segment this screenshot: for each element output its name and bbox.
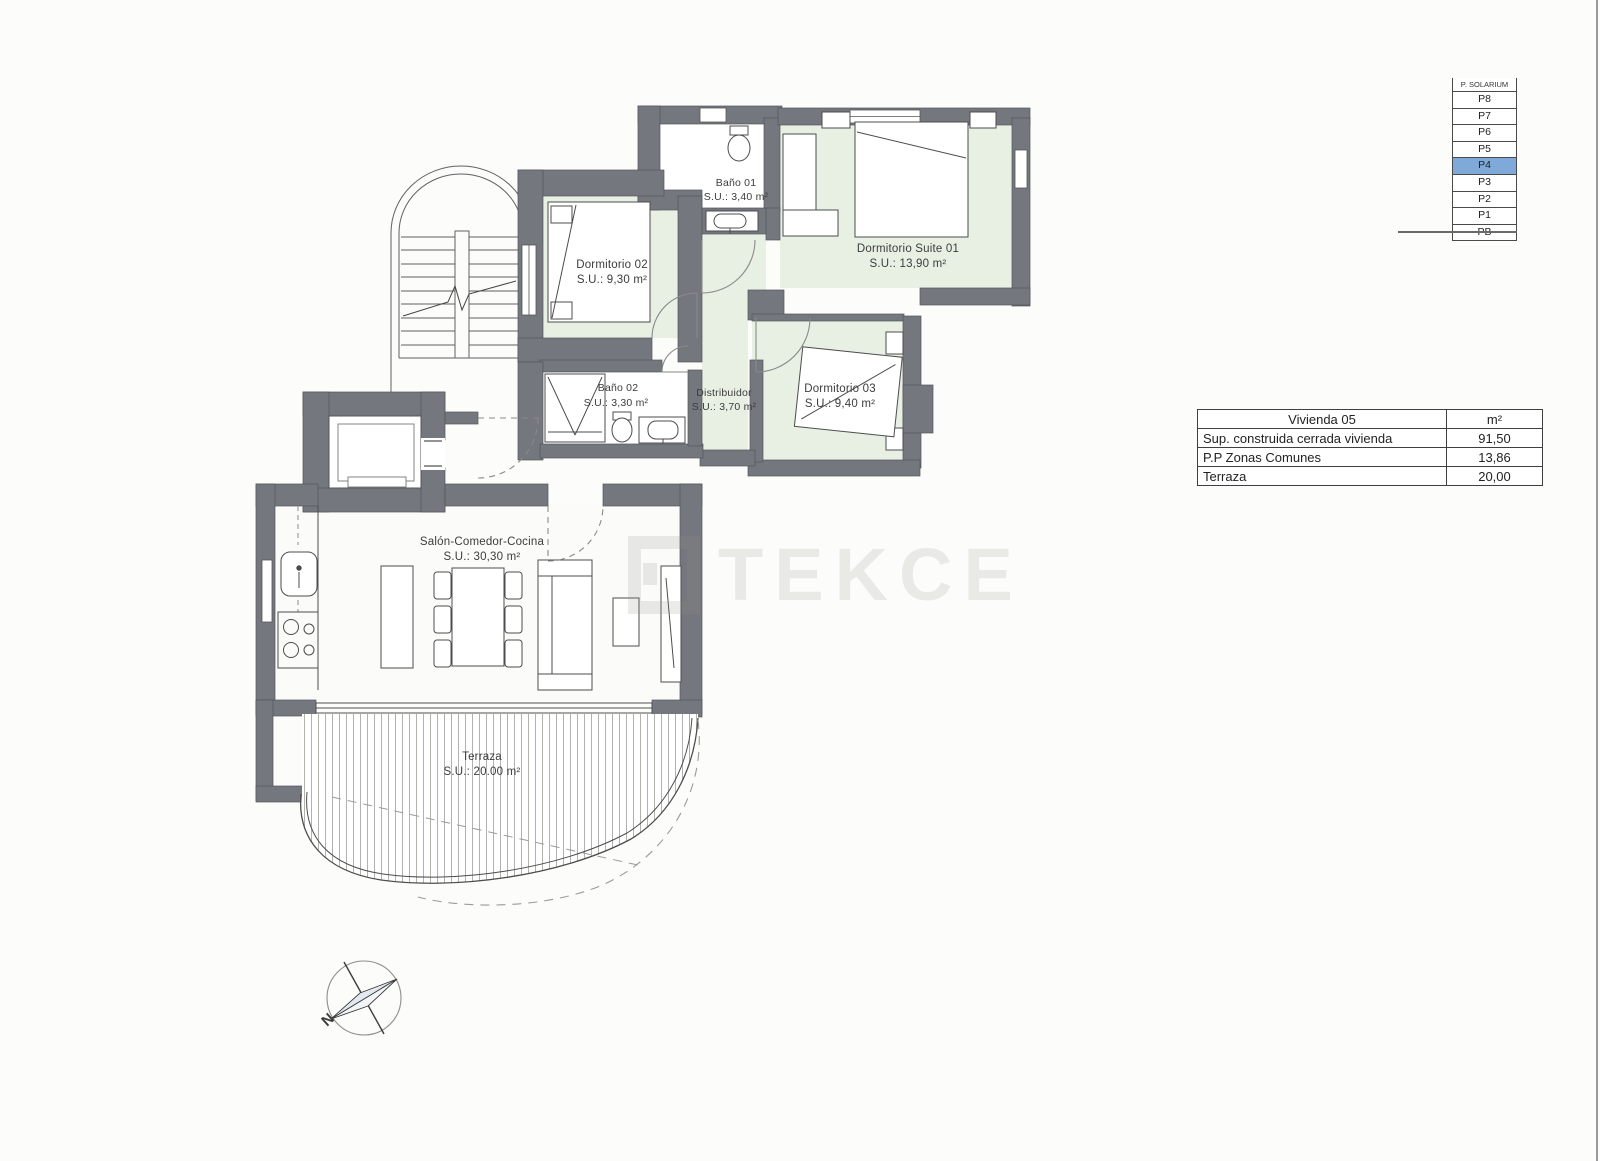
floor-row-p6: P6 [1453,125,1516,142]
area-table-header-row: Vivienda 05 m² [1198,410,1543,429]
area-table-title: Vivienda 05 [1198,410,1447,429]
floor-row-p4-selected: P4 [1453,158,1516,175]
dining-table [452,568,504,666]
terraza-area [280,700,720,905]
floor-row-p3: P3 [1453,175,1516,192]
chair [434,572,451,599]
window-salon-left [262,560,272,622]
dormitorio-02-area: S.U.: 9,30 m² [577,274,647,286]
terraza-label: Terraza [462,751,502,763]
area-row-label: Terraza [1198,467,1447,486]
floor-row-p8: P8 [1453,92,1516,109]
floor-selector-ground-line [1398,231,1517,233]
coffee-table [613,598,639,646]
area-table-unit: m² [1447,410,1543,429]
bano-01-label: Baño 01 [716,177,757,189]
dormitorio-03-area: S.U.: 9,40 m² [805,398,875,410]
window-bano01 [700,108,726,122]
chair [434,606,451,633]
bano-02-label: Baño 02 [598,382,639,394]
area-row-value: 20,00 [1447,467,1543,486]
distribuidor-label: Distribuidor [696,387,752,399]
area-table-row: Terraza 20,00 [1198,467,1543,486]
tv-unit [661,566,681,682]
toilet-bano01 [728,126,750,161]
scan-edge-artifact [1596,0,1599,1161]
toilet-bano02 [612,412,632,442]
distribuidor-floor [702,290,748,452]
floor-row-p2: P2 [1453,192,1516,209]
compass-north-label: N [318,1010,337,1030]
floor-selector-title: P. SOLARIUM [1453,78,1516,92]
floor-plan-svg: Baño 01 S.U.: 3,40 m² Dormitorio 02 S.U.… [0,0,1600,1161]
dormitorio-02-label: Dormitorio 02 [576,259,648,271]
floor-plan-page: Baño 01 S.U.: 3,40 m² Dormitorio 02 S.U.… [0,0,1600,1161]
window-suite-right [1015,150,1027,188]
salon-label: Salón-Comedor-Cocina [420,536,545,548]
area-row-value: 13,86 [1447,448,1543,467]
terraza-area-text: S.U.: 20.00 m² [444,766,521,778]
chair [434,640,451,667]
area-row-value: 91,50 [1447,429,1543,448]
salon-area: S.U.: 30,30 m² [444,551,521,563]
bano-01-area: S.U.: 3,40 m² [704,191,769,203]
kitchen-island [381,566,413,668]
compass-needle [331,979,397,1019]
floor-row-p1: P1 [1453,208,1516,225]
dormitorio-suite-01-area: S.U.: 13,90 m² [870,258,947,270]
area-table-row: P.P Zonas Comunes 13,86 [1198,448,1543,467]
sofa [538,560,592,690]
sink-bano01 [706,211,758,234]
floor-row-p5: P5 [1453,142,1516,159]
distribuidor-area: S.U.: 3,70 m² [692,401,757,413]
bano-02-area: S.U.: 3,30 m² [584,397,649,409]
elevator-door [421,438,445,470]
sink-bano02 [639,417,685,444]
floor-row-p7: P7 [1453,109,1516,126]
chair [505,606,522,633]
area-row-label: P.P Zonas Comunes [1198,448,1447,467]
area-table: Vivienda 05 m² Sup. construida cerrada v… [1197,409,1543,486]
terrace-glazing [316,703,652,713]
chair [505,640,522,667]
area-table-row: Sup. construida cerrada vivienda 91,50 [1198,429,1543,448]
dormitorio-03-label: Dormitorio 03 [804,383,876,395]
dormitorio-suite-01-label: Dormitorio Suite 01 [857,243,959,255]
chair [505,572,522,599]
area-row-label: Sup. construida cerrada vivienda [1198,429,1447,448]
floor-selector: P. SOLARIUM P8 P7 P6 P5 P4 P3 P2 P1 PB [1452,78,1517,241]
compass: N [318,961,401,1035]
